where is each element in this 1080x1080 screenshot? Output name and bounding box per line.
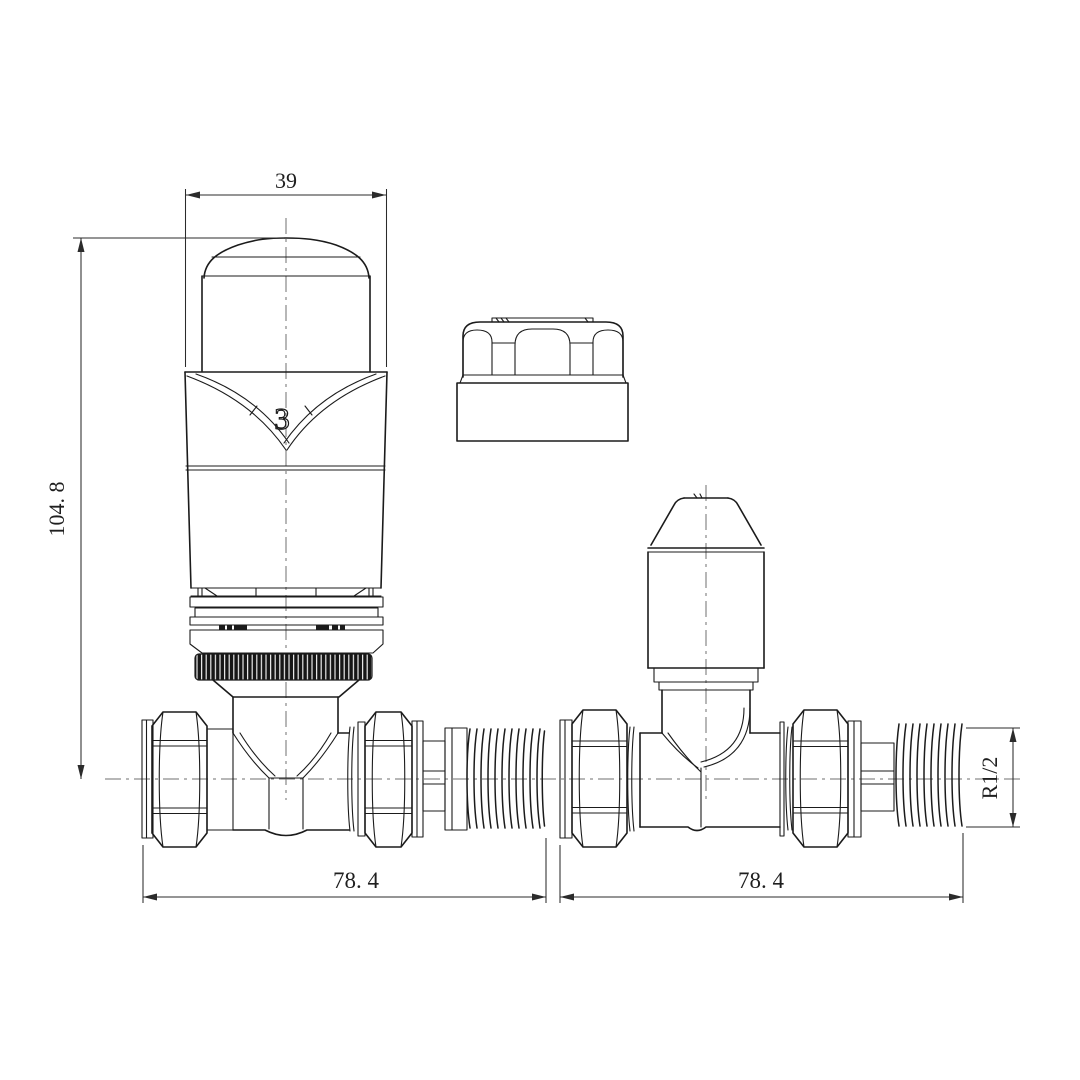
- dimension-tail-thread: R1/2: [966, 728, 1020, 827]
- centerlines: [105, 218, 1022, 800]
- dim-overall-height-text: 104. 8: [44, 482, 69, 537]
- dimension-left-valve-length: 78. 4: [143, 838, 546, 903]
- knurl-tick-band: [219, 626, 345, 631]
- dim-head-width-text: 39: [275, 168, 297, 193]
- dim-right-valve-length-text: 78. 4: [738, 868, 785, 893]
- threaded-tail-right: [896, 724, 962, 826]
- dim-tail-thread-text: R1/2: [977, 757, 1002, 800]
- technical-drawing-canvas: 3: [0, 0, 1080, 1080]
- drawing-sheet: 3: [0, 0, 1080, 1080]
- knurled-locking-ring: [195, 654, 372, 680]
- lockshield-valve-body-drawing: [560, 708, 962, 847]
- manual-cap-drawing: [457, 318, 628, 441]
- dim-left-valve-length-text: 78. 4: [333, 868, 380, 893]
- trv-setting-number: 3: [274, 401, 290, 436]
- dimension-overall-height: 104. 8: [44, 238, 284, 779]
- dimension-right-valve-length: 78. 4: [560, 833, 963, 903]
